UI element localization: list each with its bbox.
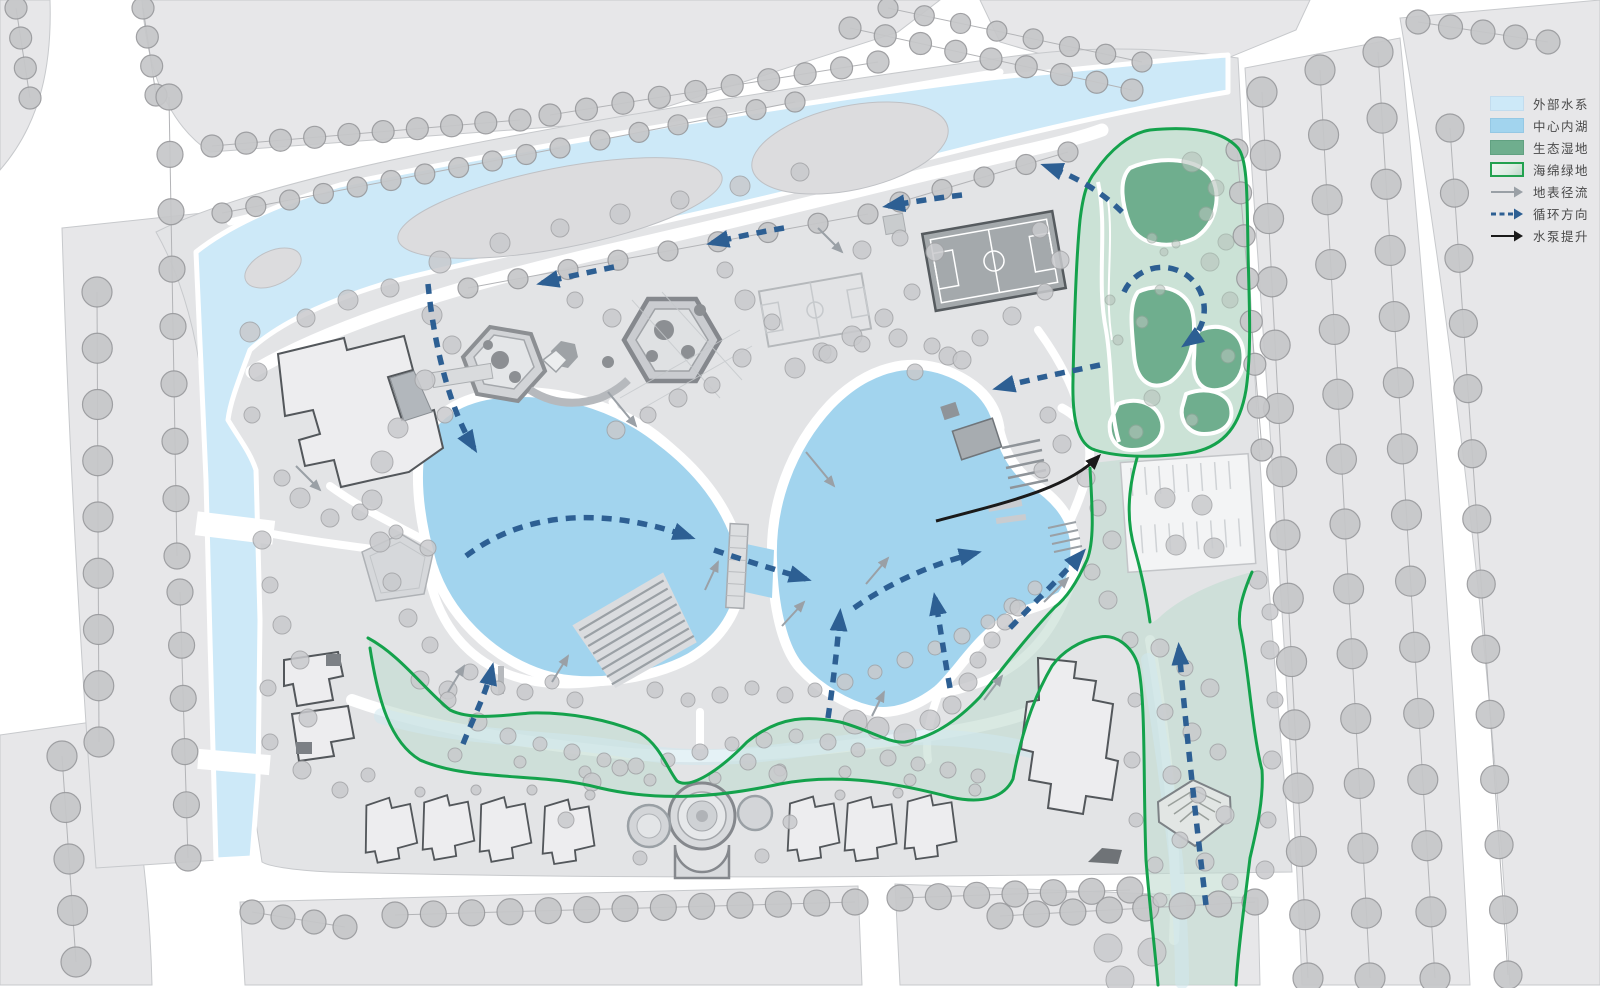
tree xyxy=(1383,368,1413,398)
tree xyxy=(273,616,291,634)
tree xyxy=(333,915,357,939)
tree xyxy=(735,290,755,310)
legend: 外部水系中心内湖生态湿地海绵绿地地表径流循环方向水泵提升 xyxy=(1490,96,1600,250)
legend-label: 水泵提升 xyxy=(1533,226,1589,245)
tree xyxy=(1172,240,1180,248)
tree xyxy=(585,790,595,800)
tree xyxy=(269,129,291,151)
tree xyxy=(911,757,925,771)
tree xyxy=(892,230,908,246)
tree xyxy=(1053,435,1071,453)
tree xyxy=(1206,891,1232,917)
tree xyxy=(535,898,561,924)
tree xyxy=(458,278,478,298)
tree xyxy=(58,896,88,926)
tree xyxy=(671,191,689,209)
tree xyxy=(959,673,977,691)
tree xyxy=(964,882,990,908)
legend-surface-runoff-arrow-icon xyxy=(1490,184,1524,199)
tree xyxy=(785,358,805,378)
tree xyxy=(1406,10,1430,34)
tree xyxy=(785,92,805,112)
tree xyxy=(514,756,526,768)
tree xyxy=(437,407,453,423)
tree xyxy=(740,754,756,770)
tree xyxy=(1096,897,1122,923)
tree xyxy=(819,345,837,363)
tree xyxy=(497,899,523,925)
tree xyxy=(1040,407,1056,423)
tree xyxy=(83,390,113,420)
tree xyxy=(471,785,481,795)
tree xyxy=(448,748,462,762)
tree xyxy=(969,784,981,796)
tree xyxy=(490,233,510,253)
tree xyxy=(1084,564,1100,580)
tree xyxy=(280,190,300,210)
tree xyxy=(707,107,727,127)
tree xyxy=(141,55,163,77)
tree xyxy=(173,792,199,818)
tree xyxy=(422,637,438,653)
legend-item-eco-wetland: 生态湿地 xyxy=(1490,140,1600,155)
tree xyxy=(381,171,401,191)
tree xyxy=(1099,591,1117,609)
swatch xyxy=(1490,162,1524,177)
tree xyxy=(889,329,907,347)
tree xyxy=(1034,462,1050,478)
tree xyxy=(1436,114,1464,142)
lake-bridge xyxy=(726,524,748,609)
tree xyxy=(1151,639,1169,657)
tree xyxy=(162,428,188,454)
tree xyxy=(1471,20,1495,44)
tree xyxy=(1002,881,1028,907)
tree xyxy=(1270,520,1300,550)
tree xyxy=(689,893,715,919)
tree xyxy=(1476,700,1504,728)
tree xyxy=(1449,309,1477,337)
tree xyxy=(14,57,36,79)
tree xyxy=(1250,140,1280,170)
tree xyxy=(1463,505,1491,533)
tree xyxy=(1341,704,1371,734)
tree xyxy=(1337,639,1367,669)
tree xyxy=(244,407,260,423)
tree xyxy=(612,896,638,922)
tree xyxy=(371,451,393,473)
parking-lot xyxy=(1120,454,1255,573)
tree xyxy=(441,115,463,137)
tree xyxy=(84,671,114,701)
tree xyxy=(765,891,791,917)
tree xyxy=(406,118,428,140)
tree xyxy=(500,728,516,744)
legend-swatch-external-water-icon xyxy=(1490,96,1524,111)
tree xyxy=(1058,142,1078,162)
tree xyxy=(897,652,913,668)
tree xyxy=(783,815,797,829)
tree xyxy=(527,785,537,795)
tree xyxy=(972,330,988,346)
tree xyxy=(274,470,290,486)
tree xyxy=(607,421,625,439)
tree xyxy=(926,243,944,261)
tree xyxy=(575,98,597,120)
arrow-glyph xyxy=(1490,206,1524,221)
legend-circulation-direction-arrow-icon xyxy=(1490,206,1524,221)
tree xyxy=(136,26,158,48)
tree xyxy=(1199,207,1213,221)
tree xyxy=(794,63,816,85)
tree xyxy=(388,418,408,438)
tree xyxy=(893,788,903,798)
tree xyxy=(1420,963,1450,988)
tree xyxy=(290,488,310,508)
tree xyxy=(1355,963,1385,988)
tree xyxy=(201,135,223,157)
tree xyxy=(338,123,360,145)
tree xyxy=(858,204,878,224)
tree xyxy=(420,901,446,927)
tree xyxy=(880,750,896,766)
tree xyxy=(1233,225,1255,247)
tree xyxy=(868,665,882,679)
tree xyxy=(1247,77,1277,107)
tree xyxy=(1504,25,1528,49)
tree xyxy=(1129,813,1143,827)
tree xyxy=(1490,896,1518,924)
tree xyxy=(954,628,970,644)
tree xyxy=(733,349,751,367)
tree xyxy=(1261,641,1279,659)
tree xyxy=(1204,538,1224,558)
tree xyxy=(304,126,326,148)
tree xyxy=(564,744,580,760)
tree xyxy=(650,894,676,920)
tree xyxy=(940,762,956,778)
tree xyxy=(1472,635,1500,663)
tree xyxy=(1283,773,1313,803)
tree xyxy=(1408,765,1438,795)
tree xyxy=(1032,222,1048,238)
tree xyxy=(1172,832,1188,848)
tree xyxy=(1186,414,1198,426)
tree xyxy=(51,793,81,823)
tree xyxy=(1222,874,1238,890)
tree xyxy=(669,389,687,407)
tree xyxy=(1290,900,1320,930)
tree xyxy=(685,80,707,102)
tree xyxy=(984,632,1000,648)
tree xyxy=(1201,679,1219,697)
tree xyxy=(745,681,759,695)
tree xyxy=(920,710,940,730)
tree xyxy=(1536,30,1560,54)
tree xyxy=(415,370,435,390)
tree xyxy=(567,692,583,708)
tree xyxy=(887,885,913,911)
tree xyxy=(1128,693,1142,707)
tree xyxy=(517,684,533,700)
tree xyxy=(1454,375,1482,403)
tree xyxy=(721,75,743,97)
tree xyxy=(1037,284,1053,300)
tree xyxy=(1267,692,1283,708)
tree xyxy=(1192,495,1212,515)
tree xyxy=(175,845,201,871)
tree xyxy=(516,145,536,165)
tree xyxy=(837,674,853,690)
tree xyxy=(370,532,390,552)
tree xyxy=(1485,831,1513,859)
tree xyxy=(681,693,695,707)
tree xyxy=(1132,52,1152,72)
tree xyxy=(83,558,113,588)
tree xyxy=(459,900,485,926)
tree xyxy=(321,509,339,527)
tree xyxy=(644,774,656,786)
tree xyxy=(804,890,830,916)
tree xyxy=(1440,179,1468,207)
tree xyxy=(1157,704,1173,720)
tree xyxy=(1260,330,1290,360)
tree xyxy=(1344,768,1374,798)
tree xyxy=(610,204,630,224)
tree xyxy=(509,109,531,131)
tree xyxy=(1221,349,1235,363)
legend-label: 中心内湖 xyxy=(1533,116,1589,135)
tree xyxy=(842,889,868,915)
tree xyxy=(717,262,733,278)
tree xyxy=(597,753,611,767)
tree xyxy=(1060,899,1086,925)
tree xyxy=(132,0,154,19)
tree xyxy=(332,782,348,798)
tree xyxy=(974,167,994,187)
tree xyxy=(1367,103,1397,133)
tree xyxy=(1267,457,1297,487)
legend-swatch-central-lake-icon xyxy=(1490,118,1524,133)
legend-label: 生态湿地 xyxy=(1533,138,1589,157)
tree xyxy=(904,284,920,300)
tree xyxy=(383,573,401,591)
tree xyxy=(1312,185,1342,215)
tree xyxy=(253,531,271,549)
tree xyxy=(172,739,198,765)
tree xyxy=(415,164,435,184)
tree xyxy=(970,652,986,668)
tree xyxy=(1103,531,1121,549)
tree xyxy=(1309,120,1339,150)
tree xyxy=(1023,901,1049,927)
tree xyxy=(1481,766,1509,794)
tree xyxy=(1160,248,1168,256)
tree xyxy=(758,69,780,91)
arrow-glyph xyxy=(1490,184,1524,199)
tree xyxy=(924,338,940,354)
tree xyxy=(839,766,851,778)
tree xyxy=(10,27,32,49)
site-plan-map xyxy=(0,0,1600,988)
legend-label: 外部水系 xyxy=(1533,94,1589,113)
tree xyxy=(692,744,708,760)
tree xyxy=(567,292,583,308)
tree xyxy=(612,92,634,114)
tree xyxy=(1016,155,1036,175)
tree xyxy=(262,734,278,750)
tree xyxy=(160,314,186,340)
tree xyxy=(1147,857,1163,873)
tree xyxy=(164,543,190,569)
tree xyxy=(482,151,502,171)
tree xyxy=(951,13,971,33)
tree xyxy=(5,0,27,19)
tree xyxy=(1121,79,1143,101)
tree xyxy=(382,902,408,928)
tree xyxy=(443,336,461,354)
tree xyxy=(1105,295,1115,305)
tree xyxy=(712,687,728,703)
tree xyxy=(835,790,845,800)
swatch xyxy=(1490,96,1524,111)
swatch xyxy=(1490,140,1524,155)
tree xyxy=(791,163,809,181)
tree xyxy=(235,132,257,154)
tree xyxy=(1023,29,1043,49)
tree xyxy=(658,241,678,261)
tree xyxy=(539,104,561,126)
tree xyxy=(1051,64,1073,86)
tree xyxy=(1293,963,1323,988)
tree xyxy=(313,184,333,204)
tree xyxy=(853,241,871,259)
tree xyxy=(158,199,184,225)
tree xyxy=(1256,861,1274,879)
arrow-glyph xyxy=(1490,228,1524,243)
tree xyxy=(1138,938,1166,966)
tree xyxy=(730,176,750,196)
tree xyxy=(302,910,326,934)
tree xyxy=(943,696,961,714)
tree xyxy=(1305,55,1335,85)
tree xyxy=(271,905,295,929)
tree xyxy=(159,256,185,282)
tree xyxy=(1124,752,1140,768)
tree xyxy=(240,900,264,924)
tree xyxy=(161,371,187,397)
tree xyxy=(84,727,114,757)
tree xyxy=(389,525,403,539)
tree xyxy=(1155,285,1165,295)
tree xyxy=(1375,235,1405,265)
tree xyxy=(338,290,358,310)
tree xyxy=(1094,934,1122,962)
tree xyxy=(299,709,317,727)
tree xyxy=(260,680,276,696)
tree xyxy=(491,681,505,695)
tree xyxy=(746,100,766,120)
tree xyxy=(551,219,569,237)
swatch xyxy=(1490,118,1524,133)
tree xyxy=(878,0,898,18)
tree xyxy=(1240,310,1262,332)
tree xyxy=(475,112,497,134)
tree xyxy=(1351,898,1381,928)
tree xyxy=(1260,812,1276,828)
tree xyxy=(170,685,196,711)
tree xyxy=(1286,836,1316,866)
tree xyxy=(874,25,896,47)
tree xyxy=(1218,234,1234,250)
tree xyxy=(262,577,278,593)
tree xyxy=(82,277,112,307)
tree xyxy=(789,729,803,743)
tree xyxy=(415,787,425,797)
tree xyxy=(1051,251,1069,269)
tree xyxy=(1210,744,1226,760)
legend-swatch-sponge-green-icon xyxy=(1490,162,1524,177)
tree xyxy=(1222,292,1238,308)
tree xyxy=(167,579,193,605)
tree xyxy=(867,51,889,73)
tree xyxy=(574,897,600,923)
tree xyxy=(84,615,114,645)
tree xyxy=(381,279,399,297)
tree xyxy=(291,651,309,669)
tree xyxy=(1257,267,1287,297)
tree xyxy=(169,632,195,658)
tree xyxy=(590,130,610,150)
tree xyxy=(875,309,893,327)
tree xyxy=(558,812,574,828)
tree xyxy=(854,336,870,352)
tree xyxy=(647,682,663,698)
tree xyxy=(1404,698,1434,728)
tree xyxy=(777,687,793,703)
tree xyxy=(945,40,967,62)
tree xyxy=(440,692,456,708)
tree xyxy=(1216,806,1234,824)
tree xyxy=(82,333,112,363)
tree xyxy=(163,486,189,512)
tree xyxy=(61,947,91,977)
tree xyxy=(603,309,621,327)
tree xyxy=(212,203,232,223)
tree xyxy=(1263,751,1281,769)
tree xyxy=(1326,444,1356,474)
tree xyxy=(1371,169,1401,199)
tree xyxy=(347,177,367,197)
tree xyxy=(987,903,1013,929)
tree xyxy=(1169,893,1195,919)
tree xyxy=(1379,302,1409,332)
tree xyxy=(1416,897,1446,927)
tree xyxy=(1208,180,1224,196)
tree xyxy=(240,322,260,342)
tree xyxy=(727,892,753,918)
tree xyxy=(19,87,41,109)
tree xyxy=(808,683,822,697)
tree xyxy=(429,251,451,273)
tree xyxy=(399,609,417,627)
tree xyxy=(1251,439,1273,461)
tree xyxy=(293,761,311,779)
tree xyxy=(1059,37,1079,57)
tree xyxy=(629,122,649,142)
legend-item-external-water: 外部水系 xyxy=(1490,96,1600,111)
tree xyxy=(54,844,84,874)
